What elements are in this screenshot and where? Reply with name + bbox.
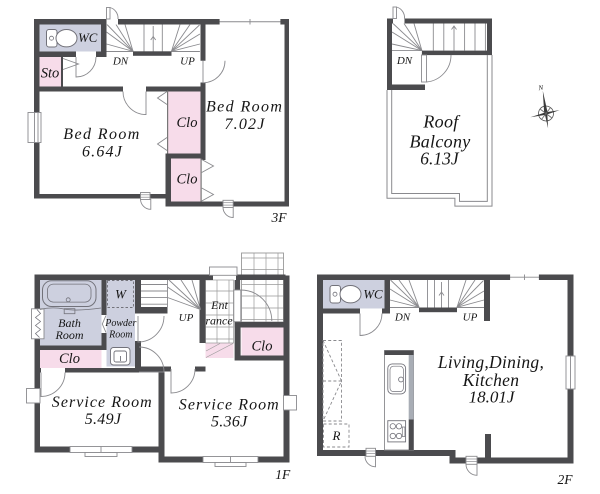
svg-text:Clo: Clo — [59, 351, 80, 367]
svg-text:Clo: Clo — [252, 339, 273, 355]
svg-text:Room: Room — [108, 330, 132, 341]
svg-text:Clo: Clo — [177, 115, 198, 131]
svg-text:DN: DN — [112, 56, 129, 68]
svg-text:Roof: Roof — [422, 112, 461, 132]
svg-text:Service Room: Service Room — [179, 397, 280, 414]
svg-text:Clo: Clo — [177, 172, 198, 188]
svg-text:Powder: Powder — [104, 318, 136, 329]
svg-text:Bed Room: Bed Room — [206, 99, 283, 116]
svg-text:3F: 3F — [271, 210, 288, 225]
svg-text:W: W — [115, 287, 127, 302]
svg-text:R: R — [332, 428, 341, 443]
svg-text:Bed Room: Bed Room — [63, 126, 140, 143]
svg-text:2F: 2F — [558, 472, 574, 487]
svg-text:UP: UP — [179, 312, 194, 324]
svg-text:Ent: Ent — [210, 298, 228, 312]
svg-text:DN: DN — [394, 312, 411, 324]
svg-text:Room: Room — [55, 328, 84, 342]
svg-text:1F: 1F — [275, 467, 291, 482]
svg-text:WC: WC — [363, 287, 383, 301]
svg-text:5.36J: 5.36J — [211, 414, 248, 431]
svg-text:18.01J: 18.01J — [469, 387, 516, 406]
svg-text:UP: UP — [463, 312, 478, 324]
svg-text:WC: WC — [78, 31, 98, 45]
svg-text:UP: UP — [180, 56, 195, 68]
svg-text:6.64J: 6.64J — [82, 144, 123, 161]
svg-text:Sto: Sto — [41, 66, 60, 82]
svg-text:Service Room: Service Room — [52, 394, 153, 411]
svg-text:DN: DN — [396, 55, 413, 67]
svg-text:6.13J: 6.13J — [420, 149, 460, 169]
svg-text:7.02J: 7.02J — [224, 116, 265, 133]
svg-text:rance: rance — [205, 314, 233, 328]
svg-text:5.49J: 5.49J — [85, 411, 122, 428]
